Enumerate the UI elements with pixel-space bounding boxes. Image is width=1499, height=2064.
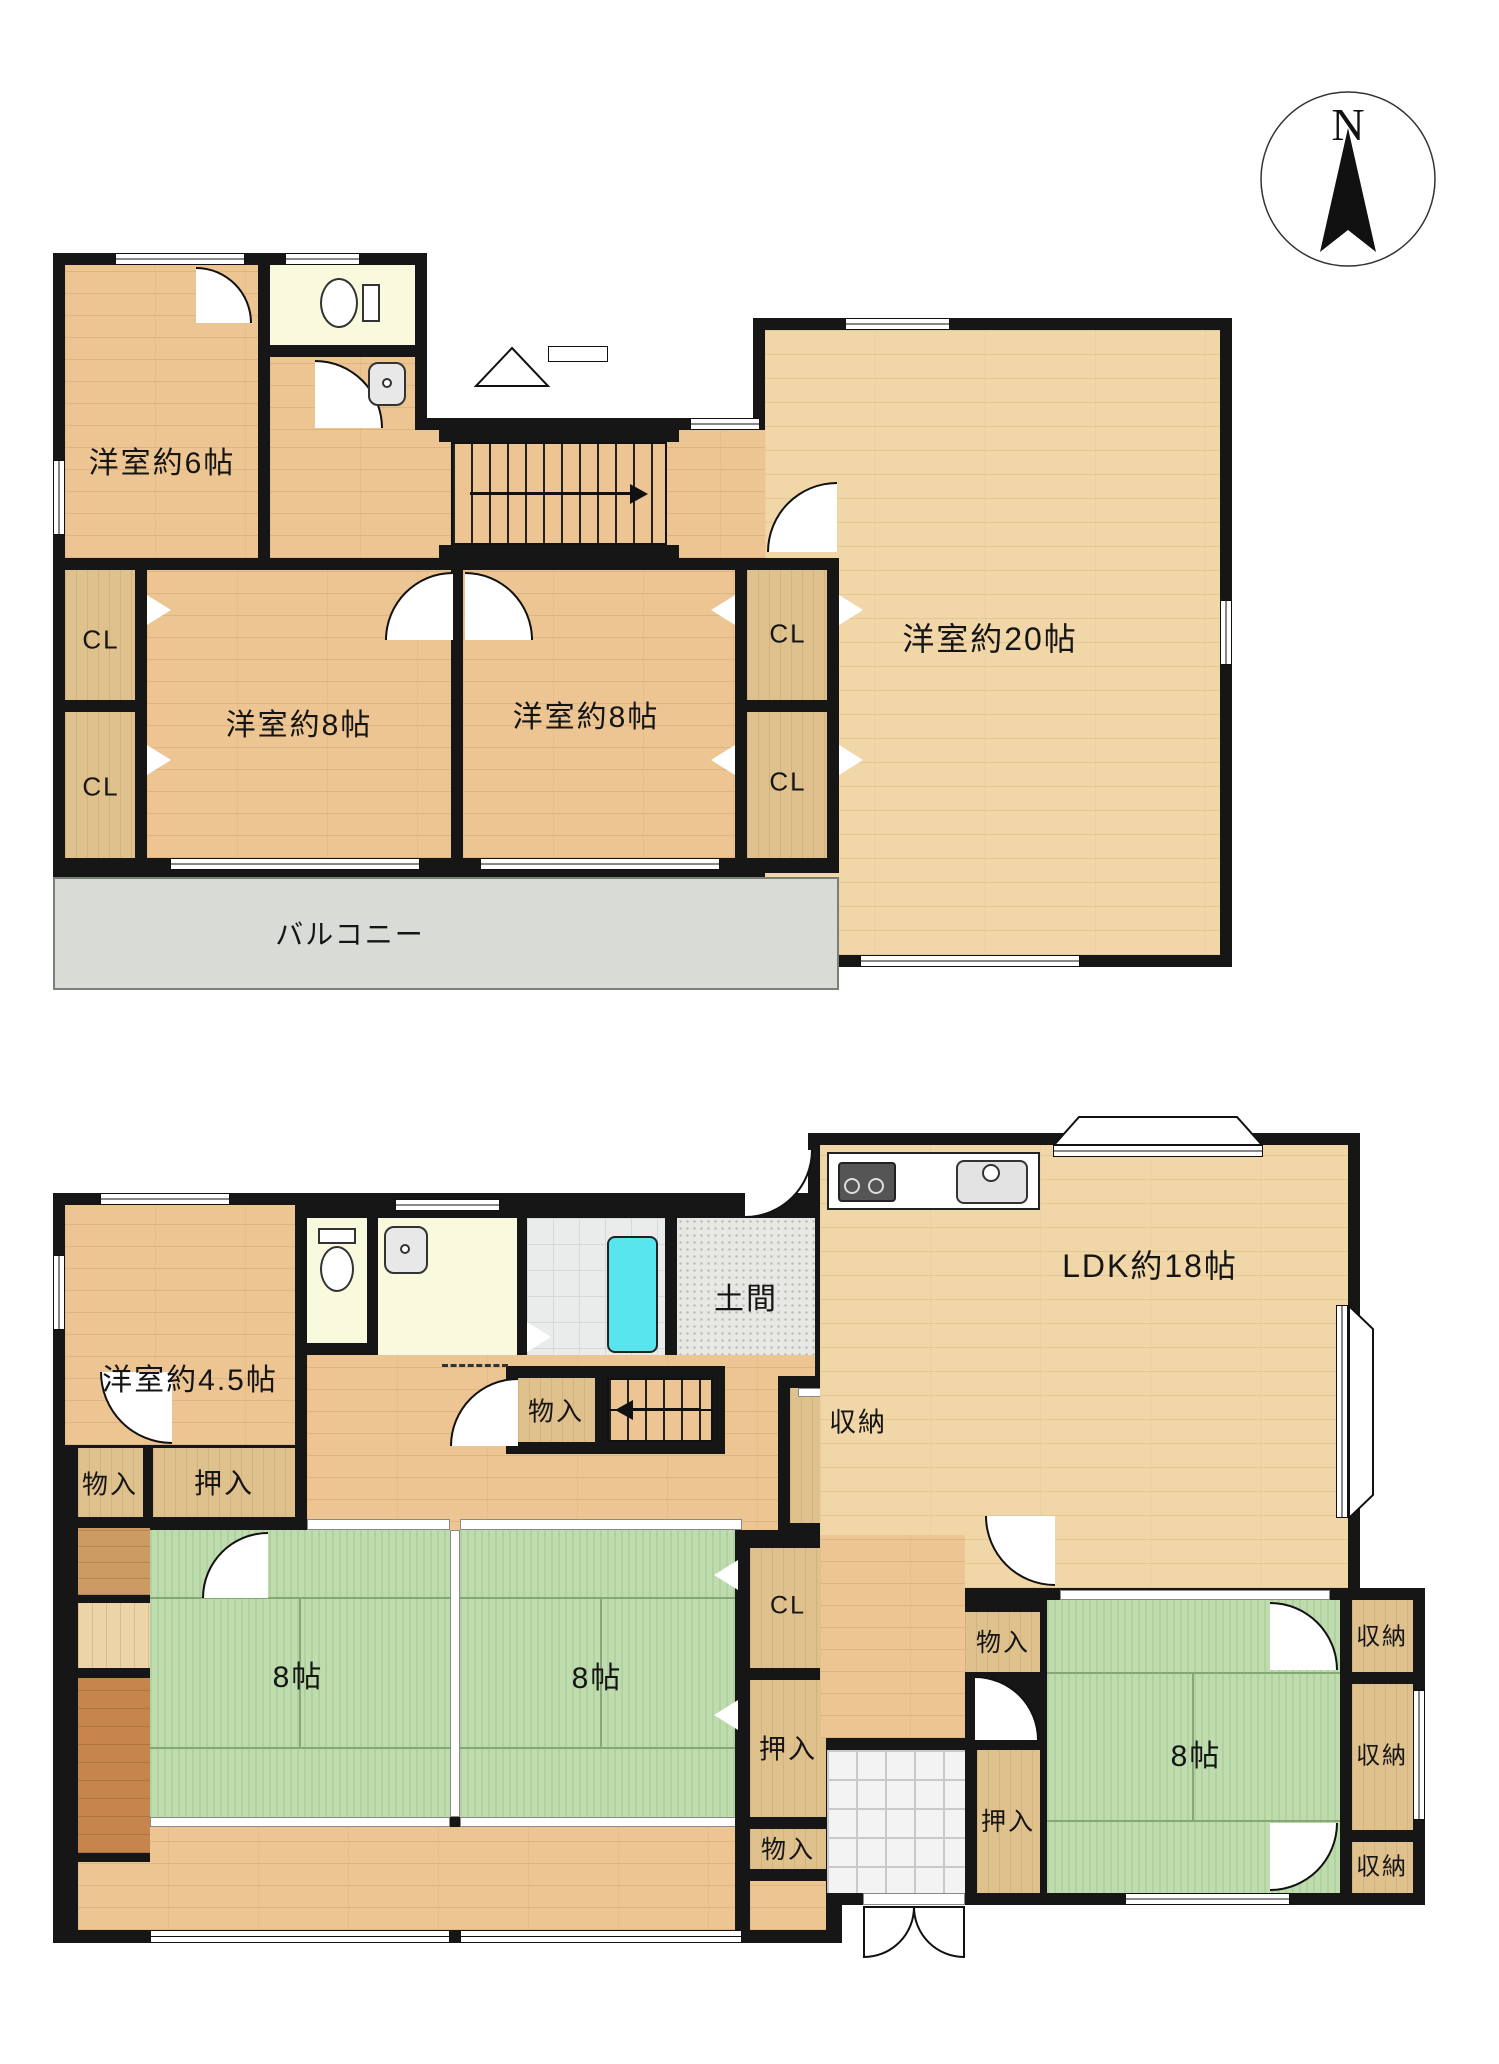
stairs-up-arrow-icon [630, 484, 648, 504]
window [285, 253, 360, 265]
window-balcony-door [170, 858, 420, 870]
room-label: 洋室約20帖 [902, 614, 1078, 660]
alcove-board-dark [78, 1678, 150, 1853]
tatami-line [1047, 1820, 1340, 1822]
entrance-double-door-icon [862, 1905, 966, 1971]
window-balcony-door [480, 858, 720, 870]
balcony-label: バルコニー [275, 913, 424, 953]
room-western-45 [65, 1205, 295, 1445]
stairs-down-arrow-icon [615, 1400, 633, 1420]
toilet-tank-icon [318, 1228, 356, 1244]
toilet-tank-icon [362, 284, 380, 322]
closet-door-mark [711, 745, 735, 775]
stove-burner-icon [868, 1178, 884, 1194]
sink-drain-icon [400, 1244, 410, 1254]
closet-label: 押入 [759, 1728, 817, 1767]
room-label: 8帖 [273, 1652, 324, 1696]
window [395, 1199, 500, 1211]
window [1053, 1145, 1263, 1157]
closet-label: 物入 [82, 1465, 138, 1502]
corridor-to-genkan [820, 1535, 965, 1738]
closet-label: 押入 [194, 1462, 254, 1502]
closet-label: 収納 [829, 1401, 887, 1440]
closet-label: CL [82, 772, 119, 803]
floor-plan-canvas: 洋室約6帖 CL CL 洋室約8帖 洋室約8帖 CL CL 洋室約20帖 バルコ… [0, 0, 1499, 2064]
bay-window-right [1348, 1305, 1375, 1519]
engawa-passage [750, 1881, 826, 1930]
room-label: 土間 [714, 1274, 778, 1318]
closet-label: CL [769, 767, 806, 798]
window [860, 955, 1080, 967]
window [460, 1930, 742, 1943]
bath-door-mark [527, 1322, 551, 1352]
window [100, 1193, 230, 1205]
closet-label: 物入 [528, 1392, 584, 1429]
bathtub-icon [607, 1236, 658, 1353]
closet-door-mark [147, 595, 171, 625]
closet-door-mark [714, 1700, 738, 1730]
window [53, 1255, 65, 1330]
stairs-arrow-shaft [630, 1408, 700, 1411]
closet-door-mark [839, 595, 863, 625]
closet-door-mark [839, 745, 863, 775]
ldk-room [820, 1145, 1348, 1588]
washroom-sliding-door [442, 1364, 508, 1367]
closet-label: 収納 [1356, 1847, 1408, 1882]
shoji-band [307, 1519, 450, 1530]
closet-label: CL [82, 625, 119, 656]
closet-label: 収納 [1356, 1617, 1408, 1652]
compass-n-label: N [1331, 99, 1364, 150]
closet-label: CL [769, 619, 806, 650]
toilet-icon [320, 1246, 354, 1292]
window [53, 460, 65, 535]
entrance-opening [863, 1893, 965, 1905]
wall-plate [78, 1853, 150, 1862]
room-label: 洋室約8帖 [226, 700, 373, 744]
window [690, 418, 760, 430]
shoji-band [1060, 1590, 1330, 1600]
tatami-line [460, 1747, 742, 1749]
toilet-icon [320, 278, 358, 328]
room-label: LDK約18帖 [1062, 1241, 1238, 1287]
shoji-band [460, 1817, 742, 1827]
sink-drain-icon [382, 378, 392, 388]
closet-door-mark [711, 595, 735, 625]
room-label: 洋室約6帖 [89, 438, 236, 482]
alcove-board-mid [78, 1528, 150, 1595]
compass-rose-icon: N [1257, 88, 1439, 270]
wall-plate [65, 1668, 150, 1678]
balcony [53, 877, 839, 990]
window [1336, 1305, 1348, 1518]
stair-wall [439, 430, 679, 442]
shoji-band [460, 1519, 742, 1530]
window [845, 318, 950, 330]
engawa-veranda [78, 1827, 826, 1930]
stairs-arrow-shaft [470, 492, 630, 495]
closet-label: 物入 [976, 1623, 1030, 1659]
wall-plate [65, 1595, 150, 1603]
window [115, 253, 245, 265]
window [1413, 1690, 1425, 1820]
room-label: 8帖 [1171, 1731, 1222, 1775]
closet-door-mark [714, 1560, 738, 1590]
stair-wall [439, 545, 679, 558]
genkan-entrance [827, 1750, 965, 1893]
closet-door-mark [147, 745, 171, 775]
alcove-board-light [78, 1603, 150, 1668]
faucet-icon [982, 1164, 1000, 1182]
fusuma-divider [450, 1530, 460, 1817]
gable-symbol-icon [472, 342, 552, 388]
closet-label: 押入 [981, 1802, 1035, 1838]
tatami-line [150, 1747, 450, 1749]
bay-window-top [1053, 1116, 1263, 1146]
room-label: 8帖 [572, 1653, 623, 1697]
closet-label: CL [770, 1592, 806, 1621]
room-label: 洋室約8帖 [513, 692, 660, 736]
closet-label: 収納 [1356, 1736, 1408, 1771]
shoji-band [150, 1817, 450, 1827]
roof-vent-icon [548, 346, 608, 362]
stove-burner-icon [844, 1178, 860, 1194]
closet-label: 物入 [761, 1830, 815, 1866]
window [1125, 1893, 1290, 1905]
window [1220, 600, 1232, 665]
room-label: 洋室約4.5帖 [102, 1355, 278, 1399]
window [150, 1930, 450, 1943]
